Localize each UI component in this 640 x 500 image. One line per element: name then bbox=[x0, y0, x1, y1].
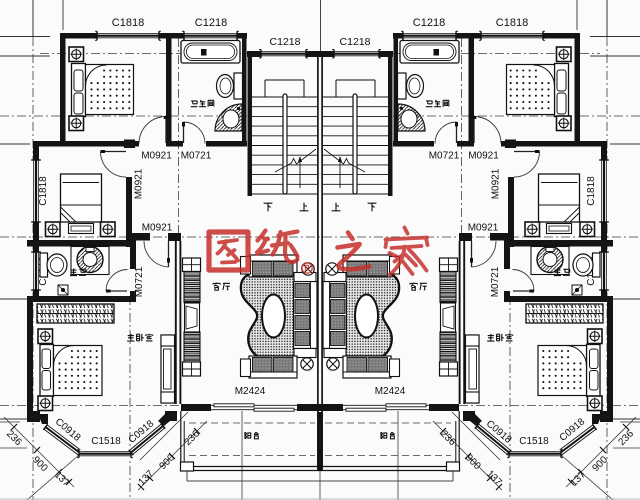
svg-text:M0721: M0721 bbox=[490, 266, 501, 297]
svg-text:C1518: C1518 bbox=[91, 436, 121, 447]
svg-text:M0721: M0721 bbox=[134, 266, 145, 297]
svg-text:C1518: C1518 bbox=[519, 436, 549, 447]
svg-text:C1218: C1218 bbox=[340, 36, 371, 48]
svg-text:M0921: M0921 bbox=[491, 168, 502, 199]
svg-text:M2424: M2424 bbox=[375, 386, 406, 397]
svg-text:C1818: C1818 bbox=[38, 176, 49, 206]
svg-text:M0921: M0921 bbox=[141, 151, 172, 162]
svg-text:C1218: C1218 bbox=[195, 17, 227, 29]
svg-text:C1818: C1818 bbox=[112, 17, 144, 29]
svg-text:C1818: C1818 bbox=[496, 17, 528, 29]
svg-text:C1218: C1218 bbox=[270, 36, 301, 48]
svg-text:M0721: M0721 bbox=[429, 151, 460, 162]
svg-text:C1818: C1818 bbox=[586, 176, 597, 206]
svg-text:M0921: M0921 bbox=[468, 223, 499, 234]
svg-text:M0721: M0721 bbox=[181, 151, 212, 162]
svg-text:M0921: M0921 bbox=[134, 168, 145, 199]
svg-text:M2424: M2424 bbox=[235, 386, 266, 397]
svg-text:M0921: M0921 bbox=[142, 223, 173, 234]
svg-text:C1218: C1218 bbox=[413, 17, 445, 29]
svg-text:M0921: M0921 bbox=[468, 151, 499, 162]
